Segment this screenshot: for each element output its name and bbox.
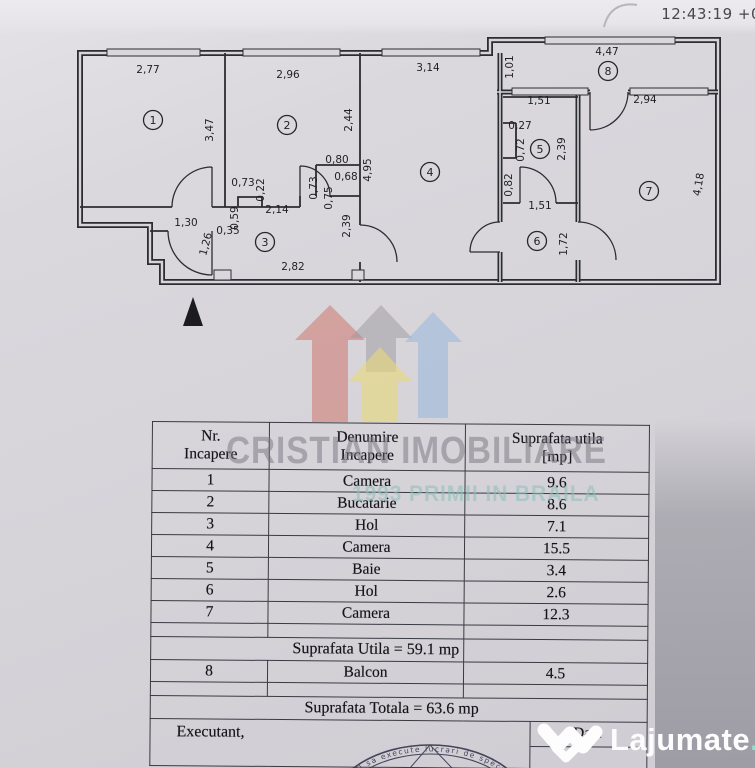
- room-number-cell: 1: [152, 469, 269, 492]
- scanned-document-page: 12:43:19 +0: [0, 0, 755, 768]
- room-name-cell: Baie: [268, 557, 464, 581]
- dimension-label: 4,18: [691, 172, 707, 197]
- table-row: Nr. IncapereDenumire IncapereSuprafata u…: [152, 422, 649, 473]
- table-header-cell: Suprafata utila [mp]: [465, 424, 649, 472]
- interior-walls: [80, 53, 578, 282]
- empty-cell: [464, 625, 648, 640]
- windows: [107, 37, 708, 280]
- room-area-cell: 12.3: [464, 603, 648, 626]
- dimension-label: 0,35: [216, 225, 239, 237]
- room-number: 6: [534, 235, 541, 248]
- empty-cell: [267, 682, 463, 698]
- dimension-label: 1,01: [504, 55, 516, 78]
- dimension-label: 0,68: [334, 171, 357, 183]
- dimension-label: 1,51: [528, 200, 551, 212]
- room-area-cell: 7.1: [465, 515, 649, 538]
- dimension-label: 1,72: [558, 232, 570, 255]
- room-number-cell: 8: [150, 659, 267, 682]
- dimension-label: 2,94: [633, 94, 657, 106]
- room-area-cell: 8.6: [465, 493, 649, 516]
- table-header-cell: Nr. Incapere: [152, 422, 269, 470]
- room-name-cell: Hol: [268, 579, 464, 603]
- executant-label: Executant,: [152, 719, 529, 768]
- room-name-cell: Bucatarie: [269, 491, 465, 515]
- dimension-label: 4,47: [595, 46, 618, 58]
- room-number: 3: [262, 236, 269, 249]
- dimension-label: 2,96: [276, 69, 300, 81]
- room-number: 8: [605, 65, 612, 78]
- room-area-cell: 2.6: [464, 581, 648, 604]
- dimension-label: 1,51: [527, 95, 550, 107]
- dimension-label: 0,72: [515, 138, 527, 161]
- room-area-cell: 3.4: [464, 559, 648, 582]
- dimension-label: 2,44: [343, 108, 355, 132]
- dimension-label: 0,27: [508, 120, 531, 132]
- dimension-label: 1,30: [174, 217, 197, 229]
- executant-row-cell: Executant,Data: [150, 718, 647, 768]
- pen-mark: [604, 4, 637, 27]
- room-number: 2: [284, 119, 291, 132]
- room-number-cell: 3: [152, 513, 269, 536]
- room-name-cell: Camera: [268, 601, 464, 625]
- dimension-label: 2,14: [265, 204, 289, 216]
- dimension-label: 0,73: [231, 177, 254, 189]
- empty-cell: [463, 684, 647, 699]
- empty-cell: [464, 639, 648, 663]
- room-area-cell: 9.6: [465, 471, 649, 494]
- dimension-label: 3,14: [416, 62, 440, 74]
- data-column: Data: [529, 722, 644, 768]
- room-number-cell: 2: [152, 491, 269, 514]
- dimension-label: 0,22: [255, 178, 267, 201]
- dimension-label: 4,95: [362, 158, 374, 181]
- data-label: Data: [530, 722, 644, 748]
- room-number-cell: 4: [151, 535, 268, 558]
- room-name-cell: Camera: [268, 535, 464, 559]
- room-name-cell: Balcon: [267, 660, 463, 684]
- suprafata-utila-cell: Suprafata Utila = 59.1 mp: [151, 636, 464, 661]
- room-number-cell: 7: [151, 600, 268, 623]
- dimension-label: 2,82: [281, 261, 304, 273]
- room-name-cell: Camera: [269, 469, 465, 493]
- dimension-labels: 2,773,472,962,443,144,950,730,220,800,73…: [136, 46, 707, 273]
- room-name-cell: Hol: [269, 513, 465, 537]
- room-number: 5: [537, 143, 544, 156]
- empty-cell: [268, 623, 464, 639]
- room-number: 4: [427, 166, 434, 179]
- dimension-label: 0,73: [308, 176, 320, 199]
- table-row: Executant,Data: [150, 718, 647, 768]
- room-area-cell: 4.5: [463, 662, 647, 685]
- photo-shadow-corner: [655, 418, 755, 768]
- room-number-cell: 6: [151, 578, 268, 601]
- dimension-label: 2,39: [556, 137, 568, 160]
- table-header-cell: Denumire Incapere: [269, 422, 465, 471]
- area-table-body: Nr. IncapereDenumire IncapereSuprafata u…: [150, 422, 650, 768]
- dimension-label: 3,47: [204, 118, 216, 141]
- dimension-label: 2,39: [341, 214, 353, 237]
- dimension-label: 2,77: [136, 64, 159, 76]
- empty-cell: [150, 681, 267, 696]
- dimension-label: 0,82: [503, 173, 515, 196]
- room-number: 1: [150, 114, 157, 127]
- dimension-label: 0,75: [323, 186, 335, 209]
- exterior-walls: [80, 40, 718, 282]
- room-number: 7: [646, 185, 653, 198]
- area-table-wrap: Nr. IncapereDenumire IncapereSuprafata u…: [149, 421, 650, 768]
- north-arrow: [183, 297, 203, 326]
- room-area-cell: 15.5: [464, 537, 648, 560]
- area-table: Nr. IncapereDenumire IncapereSuprafata u…: [149, 421, 650, 768]
- room-number-cell: 5: [151, 556, 268, 579]
- dimension-label: 0,80: [325, 154, 348, 166]
- empty-cell: [151, 622, 268, 637]
